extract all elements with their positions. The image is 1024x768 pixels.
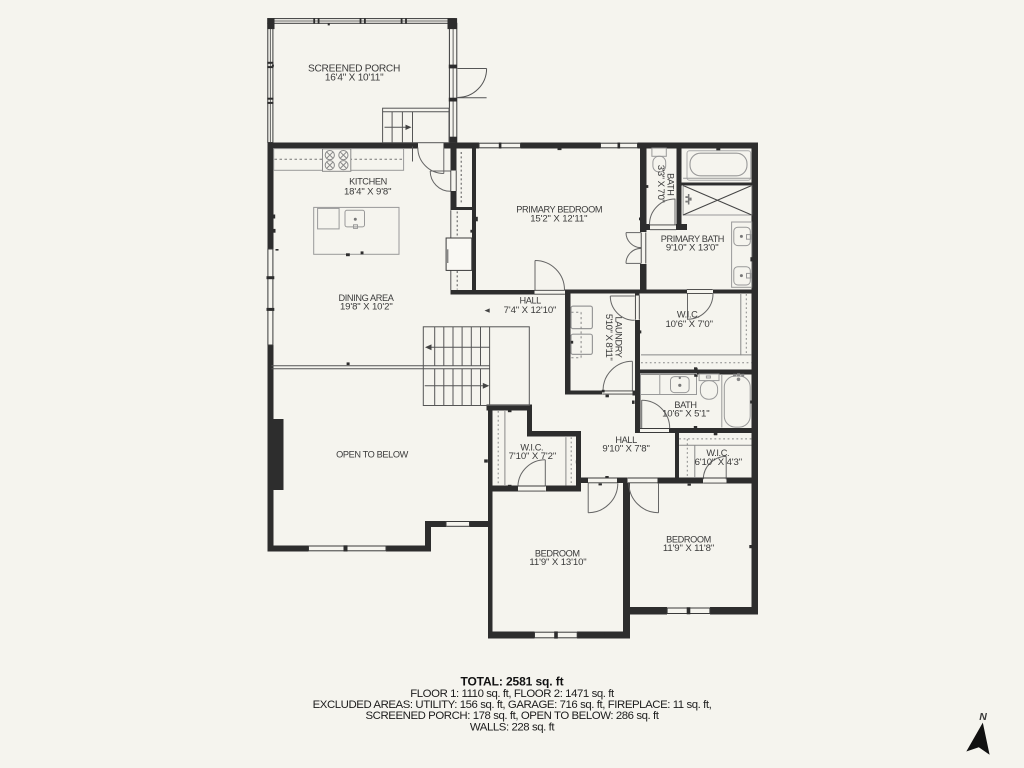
svg-text:WALLS: 228 sq. ft: WALLS: 228 sq. ft	[470, 721, 555, 733]
svg-text:19'8" X 10'2": 19'8" X 10'2"	[340, 302, 393, 313]
svg-text:10'6" X 7'0": 10'6" X 7'0"	[665, 319, 712, 330]
svg-text:SCREENED PORCH: 178 sq. ft, OP: SCREENED PORCH: 178 sq. ft, OPEN TO BELO…	[366, 710, 660, 722]
svg-text:3'3" X 7'0": 3'3" X 7'0"	[655, 165, 666, 203]
svg-text:OPEN TO BELOW: OPEN TO BELOW	[336, 450, 409, 460]
svg-text:5'10" X 8'11": 5'10" X 8'11"	[603, 314, 614, 360]
svg-text:11'9" X 11'8": 11'9" X 11'8"	[663, 543, 714, 554]
svg-text:FLOOR 1: 1110 sq. ft, FLOOR 2:: FLOOR 1: 1110 sq. ft, FLOOR 2: 1471 sq. …	[410, 688, 615, 700]
svg-text:9'10" X 13'0": 9'10" X 13'0"	[666, 243, 719, 254]
svg-text:EXCLUDED AREAS: UTILITY: 156 s: EXCLUDED AREAS: UTILITY: 156 sq. ft, GAR…	[313, 699, 712, 711]
svg-text:18'4" X 9'8": 18'4" X 9'8"	[344, 186, 391, 197]
svg-text:LAUNDRY: LAUNDRY	[614, 316, 624, 357]
svg-text:16'4" X 10'11": 16'4" X 10'11"	[325, 73, 384, 84]
svg-text:6'10" X 4'3": 6'10" X 4'3"	[695, 457, 742, 468]
svg-text:7'4" X 12'10": 7'4" X 12'10"	[504, 305, 557, 316]
svg-text:15'2" X 12'11": 15'2" X 12'11"	[530, 214, 587, 225]
svg-text:7'10" X 7'2": 7'10" X 7'2"	[509, 451, 556, 462]
svg-text:9'10" X 7'8": 9'10" X 7'8"	[602, 443, 649, 454]
svg-text:HALL: HALL	[519, 296, 541, 306]
svg-text:KITCHEN: KITCHEN	[349, 177, 387, 187]
svg-text:10'6" X 5'1": 10'6" X 5'1"	[662, 409, 709, 420]
svg-text:TOTAL: 2581 sq. ft: TOTAL: 2581 sq. ft	[460, 675, 563, 689]
svg-text:11'9" X 13'10": 11'9" X 13'10"	[529, 557, 586, 568]
svg-text:N: N	[979, 711, 987, 723]
